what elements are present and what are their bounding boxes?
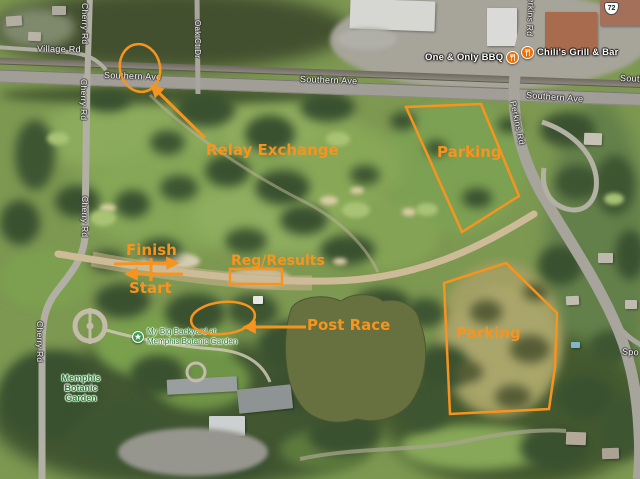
annotations-layer <box>0 0 640 479</box>
finish-label: Finish <box>126 241 177 259</box>
relay-exchange-label: Relay Exchange <box>206 141 339 159</box>
finish-arrow <box>114 263 177 264</box>
parking-se-label: Parking <box>456 324 521 342</box>
post-race-label: Post Race <box>307 316 390 334</box>
reg-results-box <box>230 269 282 284</box>
relay-exchange-circle <box>115 40 164 95</box>
relay-exchange-arrow <box>152 86 205 138</box>
reg-results-label: Reg/Results <box>231 253 325 269</box>
parking-ne-label: Parking <box>437 143 502 161</box>
satellite-map[interactable]: Village Rd Southern Ave Southern Ave Sou… <box>0 0 640 479</box>
parking-ne-outline <box>406 104 519 232</box>
post-race-circle <box>190 299 257 338</box>
start-label: Start <box>129 279 172 297</box>
